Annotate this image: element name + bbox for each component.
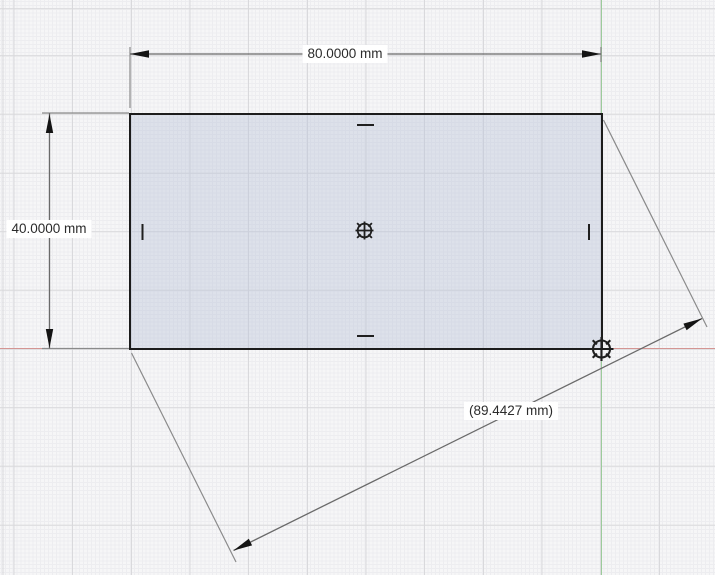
diagonal-extension-line-lower — [132, 353, 237, 562]
center-point-icon[interactable] — [356, 222, 374, 240]
arrowhead-down-icon — [46, 329, 53, 348]
arrowhead-right-icon — [582, 50, 601, 57]
origin-point-icon[interactable] — [590, 337, 614, 361]
arrowhead-up-icon — [46, 114, 53, 133]
arrowhead-left-icon — [130, 50, 149, 57]
diagonal-dimension-line[interactable] — [234, 319, 703, 551]
sketch-canvas: 80.0000 mm 40.0000 mm (89.4427 mm) — [0, 0, 715, 575]
height-dimension-label[interactable]: 40.0000 mm — [6, 220, 91, 238]
arrowhead-upper-right-icon — [683, 319, 702, 331]
arrowhead-lower-left-icon — [234, 539, 253, 551]
diagonal-dimension[interactable] — [132, 120, 708, 562]
diagonal-dimension-label[interactable]: (89.4427 mm) — [464, 402, 558, 420]
width-dimension-label[interactable]: 80.0000 mm — [302, 45, 387, 63]
diagonal-extension-line-upper — [604, 120, 708, 327]
